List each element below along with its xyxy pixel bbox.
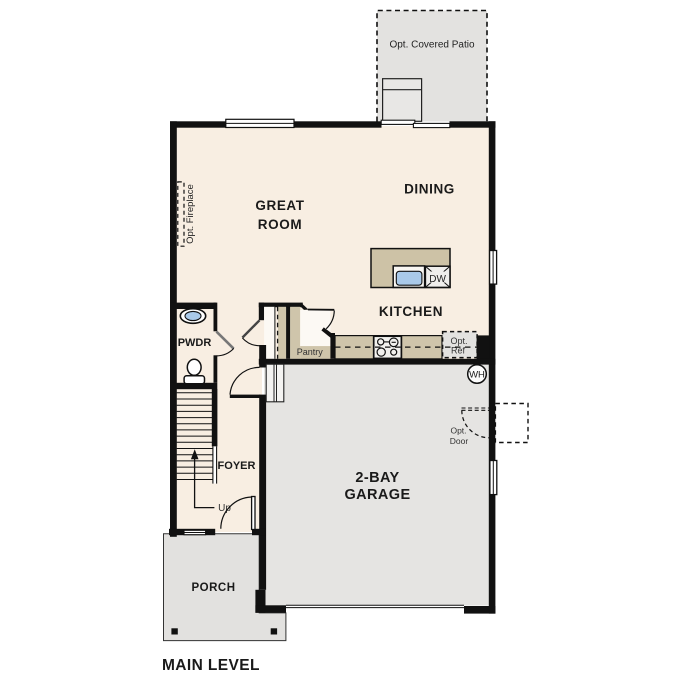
svg-text:ROOM: ROOM — [258, 217, 302, 232]
svg-text:PORCH: PORCH — [191, 582, 235, 594]
svg-text:Opt.: Opt. — [450, 336, 467, 346]
svg-text:Opt.: Opt. — [450, 426, 466, 436]
svg-text:Opt. Covered Patio: Opt. Covered Patio — [389, 40, 474, 51]
svg-text:DW: DW — [429, 274, 446, 285]
svg-text:Door: Door — [450, 436, 469, 446]
svg-text:DINING: DINING — [404, 182, 455, 197]
svg-text:2-BAY: 2-BAY — [355, 470, 399, 486]
svg-text:FOYER: FOYER — [218, 460, 256, 472]
svg-text:Opt. Fireplace: Opt. Fireplace — [185, 184, 196, 244]
svg-text:GREAT: GREAT — [255, 198, 304, 213]
svg-text:MAIN LEVEL: MAIN LEVEL — [162, 657, 260, 674]
svg-text:GARAGE: GARAGE — [344, 487, 410, 503]
svg-text:KITCHEN: KITCHEN — [379, 304, 443, 319]
svg-text:WH: WH — [469, 369, 485, 380]
svg-text:PWDR: PWDR — [178, 337, 212, 349]
svg-text:Pantry: Pantry — [297, 347, 324, 357]
